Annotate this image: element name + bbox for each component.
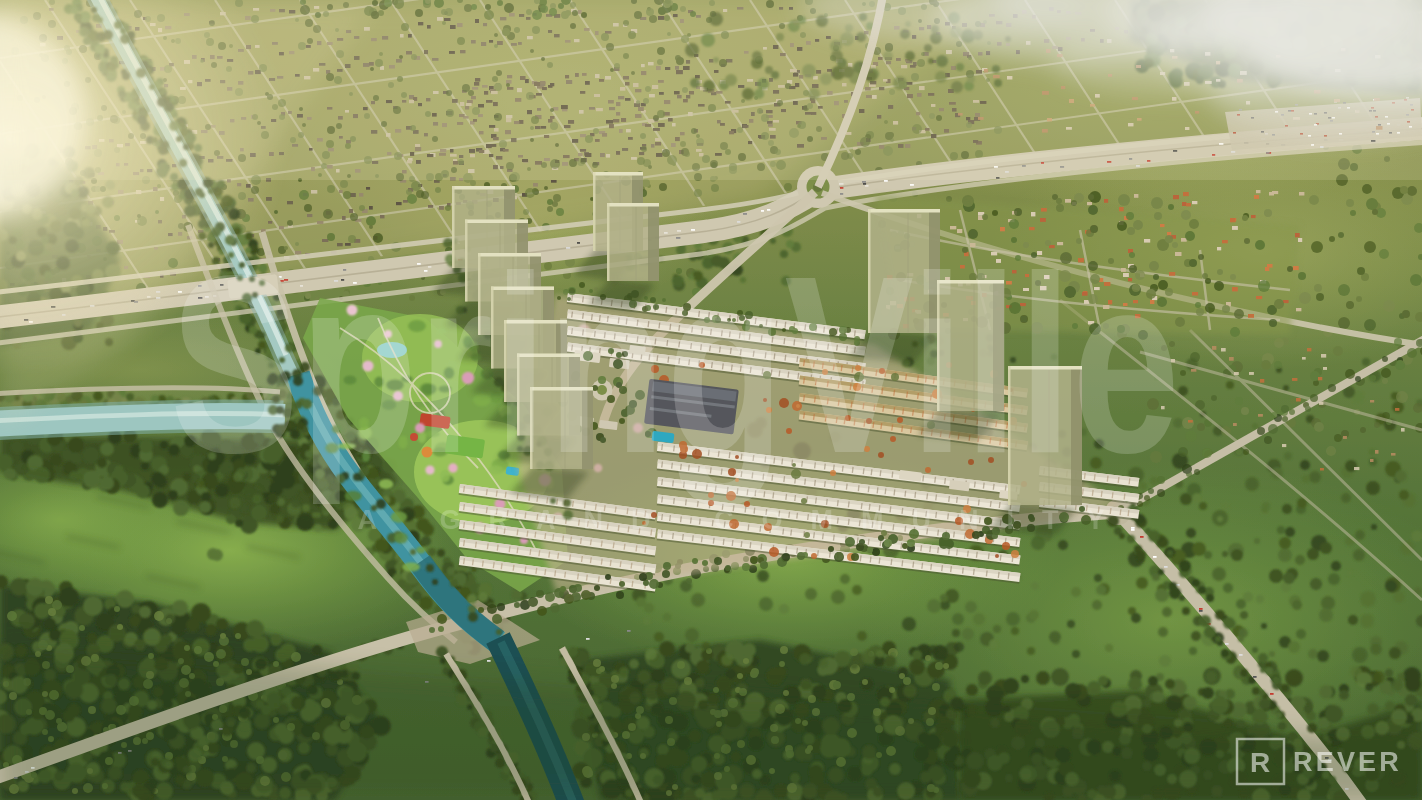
svg-text:SpringVille: SpringVille (170, 224, 1180, 506)
svg-text:A GRAND COMMUNITY: A GRAND COMMUNITY (358, 505, 1133, 535)
svg-text:R: R (1250, 747, 1270, 778)
svg-text:REVER: REVER (1293, 747, 1402, 777)
